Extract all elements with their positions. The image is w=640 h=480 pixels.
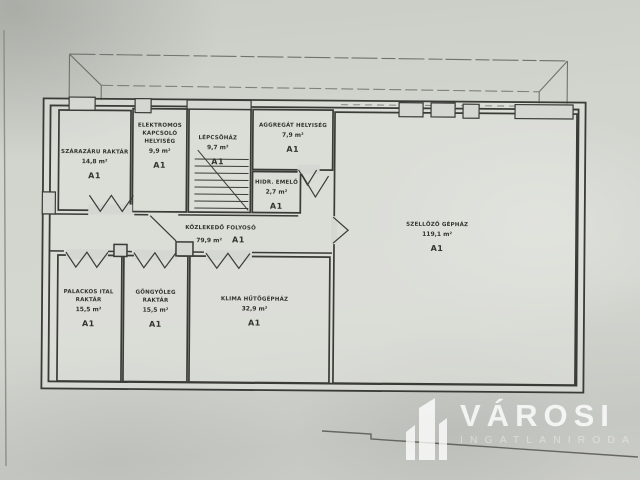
room-name: PALACKOS ITAL RAKTÁR [57,289,121,305]
room-area: 15,5 m² [56,306,120,315]
scanned-floor-plan: SZÁRAZÁRU RAKTÁR 14,8 m² A1 ELEKTROMOS K… [0,0,640,480]
room-unit: A1 [123,318,187,330]
canopy-outline [69,54,567,105]
city-buildings-icon [406,398,456,462]
watermark-brand: VÁROSI [460,400,636,431]
room-area: 9,7 m² [188,144,248,153]
room-unit: A1 [188,156,248,168]
room-name: GÖNGYÖLEG RAKTÁR [124,290,188,306]
room-area: 9,9 m² [137,148,183,157]
room-unit: A1 [137,159,183,171]
room-unit: A1 [385,242,489,254]
room-name: KÖZLEKEDŐ FOLYOSÓ [158,225,283,234]
room-label-elektromos-kapcsolo: ELEKTROMOS KAPCSOLÓ HELYISÉG 9,9 m² A1 [137,123,183,172]
room-label-gongyoleg-raktar: GÖNGYÖLEG RAKTÁR 15,5 m² A1 [123,290,187,331]
room-name: SZÁRAZÁRU RAKTÁR [59,149,131,158]
room-unit: A1 [232,234,245,246]
room-unit: A1 [248,143,338,155]
room-area: 14,8 m² [59,158,131,167]
watermark: VÁROSI INGATLANIRODA [398,394,640,478]
room-label-hidr-emelo: HIDR. EMELŐ 2,7 m² A1 [251,180,301,213]
watermark-subtitle: INGATLANIRODA [460,435,636,446]
room-name: LÉPCSŐHÁZ [188,135,248,143]
room-area: 119,1 m² [385,231,489,241]
watermark-text: VÁROSI INGATLANIRODA [460,400,636,446]
room-label-aggregat-helyiseg: AGGREGÁT HELYISÉG 7,9 m² A1 [248,122,338,155]
room-unit: A1 [251,200,301,212]
room-label-palackos-ital-raktar: PALACKOS ITAL RAKTÁR 15,5 m² A1 [56,289,120,330]
room-label-klima-hutogephaz: KLIMA HŰTŐGÉPHÁZ 32,9 m² A1 [194,296,314,329]
room-name: KLIMA HŰTŐGÉPHÁZ [195,296,315,305]
room-area: 2,7 m² [251,188,301,197]
room-name: AGGREGÁT HELYISÉG [248,122,338,131]
room-label-szellozo-gephaz: SZELLŐZŐ GÉPHÁZ 119,1 m² A1 [385,222,489,255]
room-name: SZELLŐZŐ GÉPHÁZ [385,222,489,231]
room-label-szarazaru-raktar: SZÁRAZÁRU RAKTÁR 14,8 m² A1 [59,149,131,182]
room-area: 15,5 m² [123,306,187,315]
room-unit: A1 [59,170,131,182]
room-area: 32,9 m² [194,305,314,315]
room-area-unit-row: 79,9 m² A1 [158,234,283,247]
room-label-lepcsohaz: LÉPCSŐHÁZ 9,7 m² A1 [188,135,248,168]
room-area: 7,9 m² [248,131,338,140]
room-label-kozlekedo-folyoso: KÖZLEKEDŐ FOLYOSÓ 79,9 m² A1 [158,225,283,247]
room-area: 79,9 m² [196,237,222,246]
room-name: HIDR. EMELŐ [251,180,301,188]
room-unit: A1 [194,317,314,330]
room-name: ELEKTROMOS KAPCSOLÓ HELYISÉG [137,123,183,147]
room-unit: A1 [56,318,120,330]
